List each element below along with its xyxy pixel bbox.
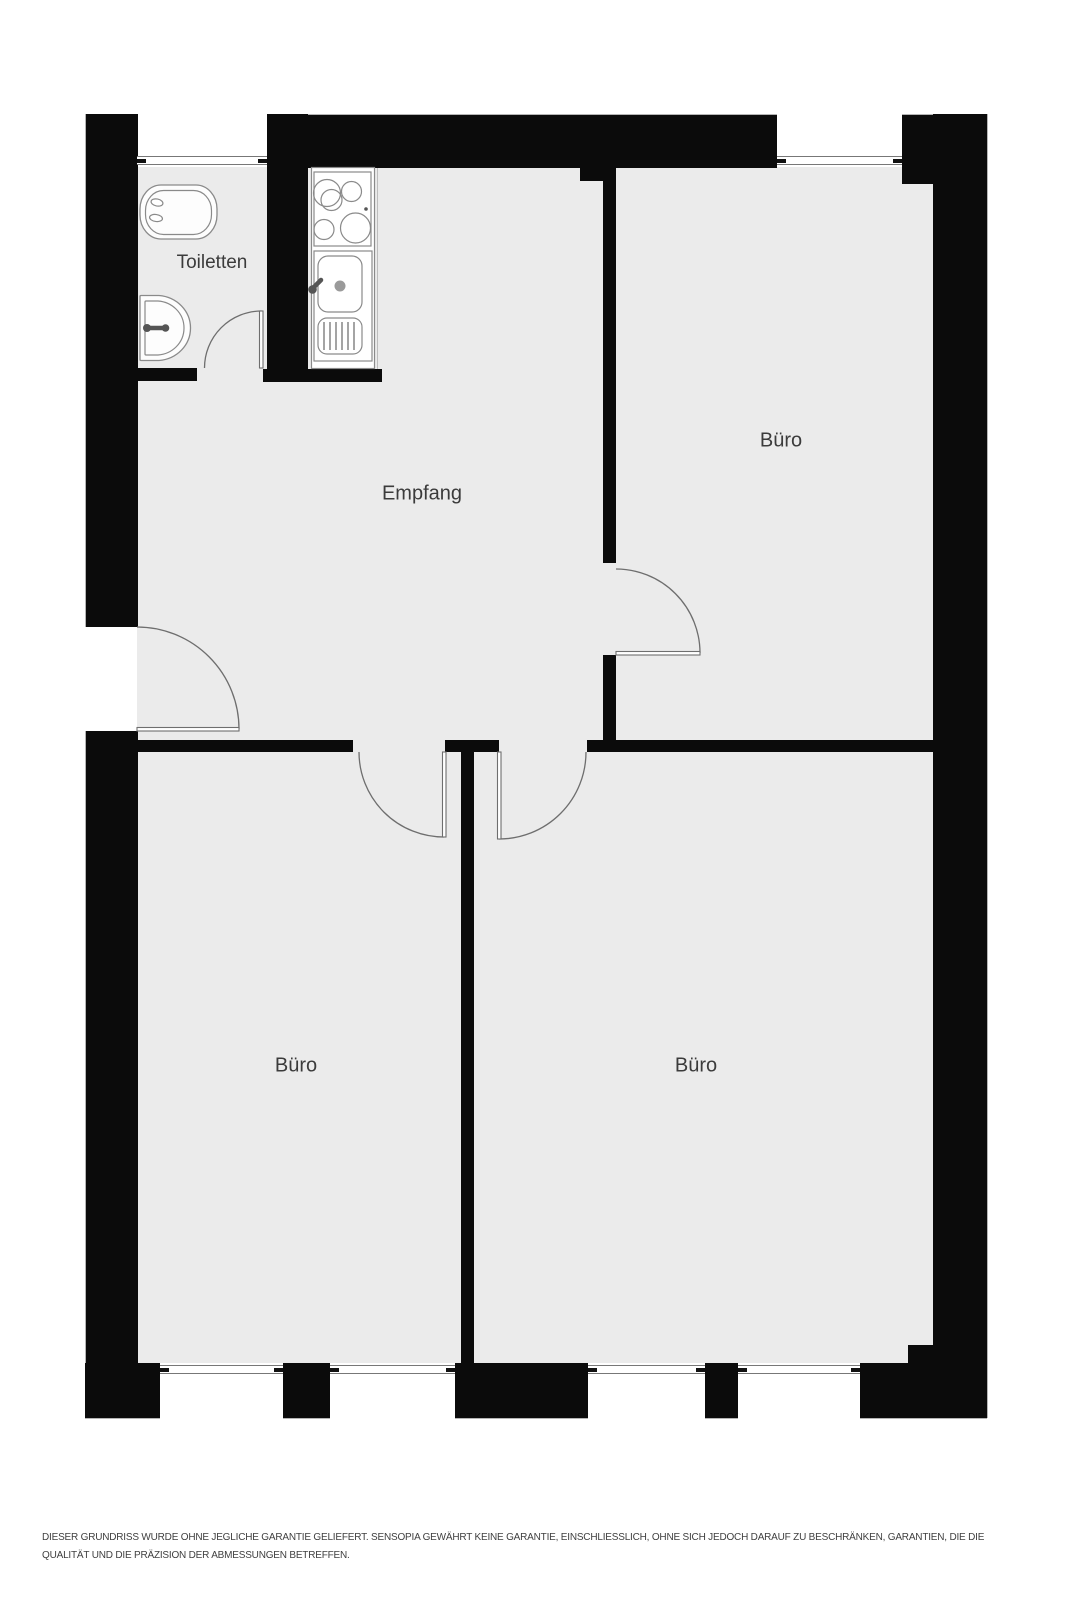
buero-bottom-left-door <box>359 752 446 837</box>
room-label-buero-bottom-left: Büro <box>275 1055 317 1078</box>
floor-plan-canvas: Toiletten Empfang Büro Büro Büro DIESER … <box>0 0 1067 1600</box>
room-label-buero-bottom-right: Büro <box>675 1055 717 1078</box>
door-leaf <box>616 652 700 656</box>
entrance-door <box>137 627 239 731</box>
room-label-toiletten: Toiletten <box>177 252 248 274</box>
stove-icon <box>314 172 372 246</box>
disclaimer-line-1: DIESER GRUNDRISS WURDE OHNE JEGLICHE GAR… <box>42 1529 1047 1547</box>
disclaimer-text: DIESER GRUNDRISS WURDE OHNE JEGLICHE GAR… <box>42 1529 1047 1564</box>
door-leaf <box>137 728 239 732</box>
door-leaf <box>498 752 502 839</box>
washbasin-icon <box>140 296 191 361</box>
kitchen-sink-icon <box>308 251 372 361</box>
buero-bottom-right-door <box>498 752 587 839</box>
door-leaf <box>443 752 447 837</box>
toilet-icon <box>140 185 217 239</box>
kitchen-unit <box>308 168 377 370</box>
room-label-buero-top-right: Büro <box>760 430 802 453</box>
buero-top-door <box>616 569 700 655</box>
toilet-door <box>205 311 264 368</box>
doors-and-fixtures-layer <box>0 0 1067 1600</box>
disclaimer-line-2: QUALITÄT UND DIE PRÄZISION DER ABMESSUNG… <box>42 1547 1047 1565</box>
room-label-empfang: Empfang <box>382 483 462 506</box>
door-leaf <box>260 311 264 368</box>
